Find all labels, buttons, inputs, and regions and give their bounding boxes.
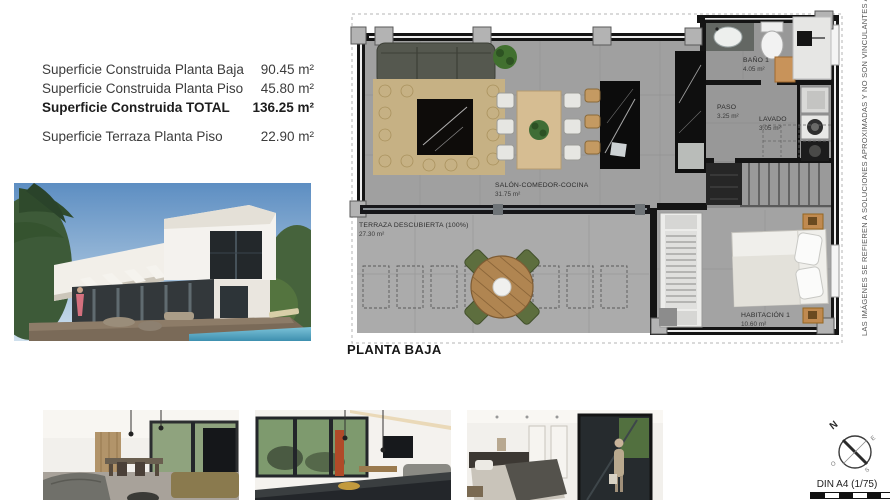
sliding-door — [360, 204, 650, 215]
scale-segment — [825, 493, 839, 498]
laundry-units — [797, 85, 829, 161]
stairs — [706, 163, 831, 205]
scale-label: DIN A4 (1/75) — [808, 479, 886, 490]
kitchen-tall-units — [675, 51, 706, 173]
wardrobe — [659, 213, 702, 327]
room-area-salon: 31.75 m² — [495, 191, 520, 198]
scale-segment — [881, 493, 890, 498]
shower — [793, 17, 831, 79]
house-exterior-render — [14, 183, 311, 341]
disclaimer-text: LAS IMÁGENES SE REFIEREN A SOLUCIONES AP… — [860, 16, 872, 336]
surface-label: Superficie Construida Planta Baja — [42, 60, 244, 79]
compass-south: S — [864, 467, 871, 474]
room-area-bano: 4.05 m² — [743, 66, 765, 73]
scale-segment — [867, 493, 881, 498]
bar-stools — [585, 89, 600, 154]
plan-title: PLANTA BAJA — [347, 342, 442, 357]
bedroom-window — [831, 245, 839, 297]
room-label-habitacion: HABITACIÓN 1 — [741, 310, 790, 319]
bath-cabinet — [775, 57, 795, 82]
scale-segment — [811, 493, 825, 498]
surface-label: Superficie Construida Planta Piso — [42, 79, 243, 98]
surface-row: Superficie Terraza Planta Piso 22.90 m² — [42, 127, 314, 146]
interior-render-bedroom — [467, 410, 663, 500]
room-label-terraza: TERRAZA DESCUBIERTA (100%) — [359, 222, 469, 229]
house-render-image — [14, 183, 311, 341]
sofa — [377, 43, 495, 85]
compass-west: O — [830, 461, 838, 469]
compass-north: N — [828, 419, 840, 432]
plan-sheet-page: Superficie Construida Planta Baja 90.45 … — [0, 0, 890, 500]
interior-render-living-dining — [43, 410, 239, 500]
scale-segment — [839, 493, 853, 498]
room-label-salon: SALÓN-COMEDOR-COCINA — [495, 180, 589, 189]
kitchen-island — [600, 81, 640, 169]
surface-label: Superficie Construida TOTAL — [42, 98, 230, 117]
compass-icon: N E O S — [818, 414, 888, 478]
compass-east: E — [870, 435, 877, 442]
bedroom-top-line — [740, 205, 831, 207]
surface-areas-table: Superficie Construida Planta Baja 90.45 … — [42, 60, 314, 146]
surface-value: 90.45 m² — [261, 60, 314, 79]
scale-bar — [810, 492, 890, 499]
interior-render-kitchen-living — [255, 410, 451, 500]
pillow — [795, 266, 824, 300]
bath-window — [831, 25, 839, 65]
surface-row: Superficie Construida Planta Baja 90.45 … — [42, 60, 314, 79]
surface-value: 136.25 m² — [252, 98, 314, 117]
bed — [732, 229, 829, 306]
toilet-bowl — [761, 31, 783, 59]
shower-head — [797, 31, 812, 46]
surface-value: 22.90 m² — [261, 127, 314, 146]
surface-row-total: Superficie Construida TOTAL 136.25 m² — [42, 98, 314, 117]
plant — [493, 45, 517, 69]
room-label-lavado: LAVADO — [759, 116, 787, 123]
dining-table — [517, 91, 561, 169]
room-area-terraza: 27.30 m² — [359, 231, 384, 238]
scale-segment — [853, 493, 867, 498]
surface-value: 45.80 m² — [261, 79, 314, 98]
room-area-lavado: 3.05 m² — [759, 125, 781, 132]
pillow — [794, 232, 823, 266]
surface-label: Superficie Terraza Planta Piso — [42, 127, 223, 146]
floor-plan-drawing: SALÓN-COMEDOR-COCINA 31.75 m² TERRAZA DE… — [345, 3, 850, 348]
coffee-table — [417, 99, 473, 155]
room-label-bano: BAÑO 1 — [743, 55, 769, 64]
room-area-paso: 3.25 m² — [717, 113, 739, 120]
surface-row: Superficie Construida Planta Piso 45.80 … — [42, 79, 314, 98]
room-area-habitacion: 10.60 m² — [741, 321, 766, 328]
room-label-paso: PASO — [717, 104, 736, 111]
floor-plan: SALÓN-COMEDOR-COCINA 31.75 m² TERRAZA DE… — [345, 3, 850, 348]
